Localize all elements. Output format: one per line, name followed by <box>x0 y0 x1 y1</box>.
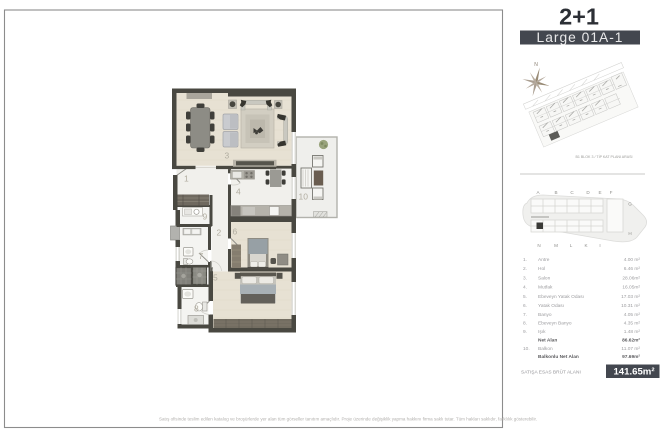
svg-text:7.: 7. <box>523 312 527 318</box>
svg-text:Mutfak: Mutfak <box>538 285 553 291</box>
svg-text:Net Alan: Net Alan <box>538 337 557 343</box>
svg-text:Ebeveyn Yatak Odası: Ebeveyn Yatak Odası <box>538 294 584 300</box>
svg-text:Balkon: Balkon <box>538 346 553 352</box>
svg-text:G: G <box>628 202 632 207</box>
svg-text:Yatak Odası: Yatak Odası <box>538 303 564 309</box>
svg-text:Banyo: Banyo <box>538 312 552 318</box>
svg-text:97.69m²: 97.69m² <box>622 354 640 360</box>
svg-text:Balkonlu Net Alan: Balkonlu Net Alan <box>538 354 579 360</box>
svg-text:17.03 m²: 17.03 m² <box>621 294 640 300</box>
svg-text:7: 7 <box>199 251 204 261</box>
svg-text:11.07 m²: 11.07 m² <box>621 346 640 352</box>
svg-text:1.48 m²: 1.48 m² <box>624 329 641 335</box>
svg-text:9.: 9. <box>523 329 527 335</box>
svg-text:6.46 m²: 6.46 m² <box>624 266 641 272</box>
svg-text:4: 4 <box>236 187 241 197</box>
svg-text:SATIŞA ESAS BRÜT ALANI: SATIŞA ESAS BRÜT ALANI <box>521 369 581 376</box>
svg-text:10.31 m²: 10.31 m² <box>621 303 640 309</box>
svg-text:3: 3 <box>225 151 230 161</box>
svg-text:4.05 m²: 4.05 m² <box>624 312 641 318</box>
svg-text:L: L <box>570 243 573 248</box>
svg-text:F: F <box>610 190 613 195</box>
svg-text:Antre: Antre <box>538 257 550 263</box>
svg-text:E: E <box>598 190 601 195</box>
svg-text:8: 8 <box>194 304 199 314</box>
svg-text:9: 9 <box>203 212 208 222</box>
svg-text:Satış ofisinde teslim edilen k: Satış ofisinde teslim edilen katalog ve … <box>159 417 537 422</box>
svg-text:2: 2 <box>217 228 222 238</box>
svg-text:28.06m²: 28.06m² <box>622 275 640 281</box>
svg-text:1.: 1. <box>523 257 527 263</box>
svg-text:D: D <box>586 190 590 195</box>
svg-text:8.: 8. <box>523 321 527 327</box>
svg-text:B1 BLOK 3 / TİP KAT PLANI ARA: B1 BLOK 3 / TİP KAT PLANI ARASI <box>575 154 632 159</box>
svg-text:Ebeveyn Banyo: Ebeveyn Banyo <box>538 321 572 327</box>
svg-text:N: N <box>534 62 538 68</box>
svg-text:B: B <box>554 190 557 195</box>
svg-text:86.62m²: 86.62m² <box>622 337 640 343</box>
svg-text:A: A <box>536 190 540 195</box>
svg-text:1: 1 <box>184 174 189 184</box>
svg-text:2+1: 2+1 <box>559 4 599 30</box>
svg-text:10.: 10. <box>523 346 530 352</box>
svg-text:16.05m²: 16.05m² <box>622 285 640 291</box>
svg-text:6: 6 <box>233 227 238 237</box>
svg-text:2.: 2. <box>523 266 527 272</box>
svg-text:N: N <box>537 243 540 248</box>
svg-text:4.: 4. <box>523 285 527 291</box>
svg-text:4.00 m²: 4.00 m² <box>624 257 641 263</box>
svg-text:6.: 6. <box>523 303 527 309</box>
svg-text:M: M <box>554 243 558 248</box>
svg-text:Salon: Salon <box>538 275 551 281</box>
svg-text:5.: 5. <box>523 294 527 300</box>
svg-text:H: H <box>628 231 631 236</box>
svg-text:141.65m²: 141.65m² <box>613 367 654 378</box>
svg-text:Işık: Işık <box>538 329 546 335</box>
svg-text:I: I <box>599 243 600 248</box>
svg-text:3.: 3. <box>523 275 527 281</box>
svg-text:4.35 m²: 4.35 m² <box>624 321 641 327</box>
svg-text:10: 10 <box>299 192 309 202</box>
svg-text:C: C <box>570 190 574 195</box>
svg-text:K: K <box>584 243 588 248</box>
svg-text:Hol: Hol <box>538 266 545 272</box>
svg-text:5: 5 <box>213 273 218 283</box>
svg-text:Large 01A-1: Large 01A-1 <box>537 30 624 45</box>
